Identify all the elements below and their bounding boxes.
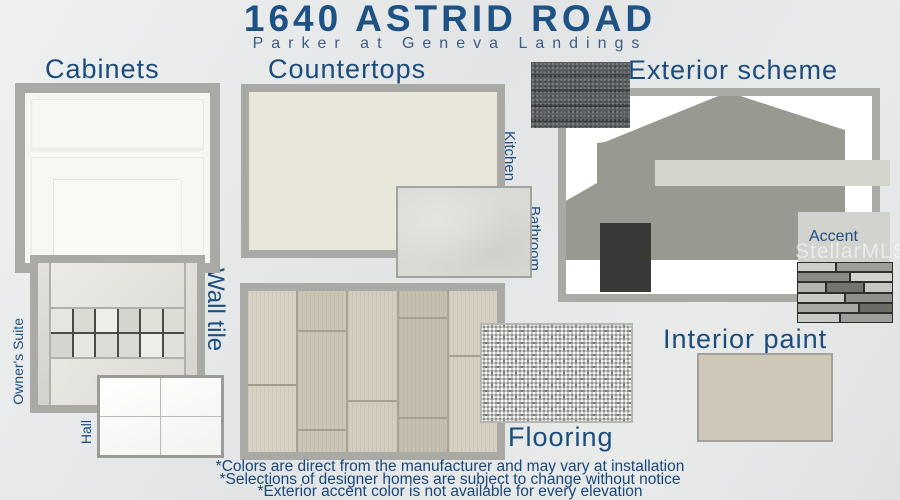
floor-plank xyxy=(298,291,348,452)
page-subtitle: Parker at Geneva Landings xyxy=(0,35,900,53)
hall-tile-swatch xyxy=(97,375,224,458)
floor-plank xyxy=(348,291,398,452)
wall-tile-top xyxy=(51,263,184,307)
interior-paint-label: Interior paint xyxy=(663,324,827,355)
exterior-scheme-label: Exterior scheme xyxy=(628,55,838,86)
floor-plank xyxy=(248,291,298,452)
design-board: 1640 ASTRID ROAD Parker at Geneva Landin… xyxy=(0,0,900,500)
owners-suite-vertical-label: Owner's Suite xyxy=(10,318,26,405)
cabinets-swatch xyxy=(15,83,220,273)
disclaimers: *Colors are direct from the manufacturer… xyxy=(0,461,900,499)
cabinet-door-panel xyxy=(54,180,181,262)
countertops-label: Countertops xyxy=(268,54,426,85)
carpet-swatch xyxy=(480,323,633,423)
wood-flooring-swatch xyxy=(240,283,505,460)
cabinet-door-front xyxy=(31,157,204,263)
bathroom-countertop-swatch xyxy=(396,186,532,278)
front-door-swatch xyxy=(600,223,651,292)
roof-shingles-swatch xyxy=(531,62,630,128)
page-title: 1640 ASTRID ROAD xyxy=(0,0,900,38)
interior-paint-swatch xyxy=(697,353,833,442)
trim-color-swatch xyxy=(655,160,890,186)
wall-tile-side-strip xyxy=(38,263,49,405)
hall-vertical-label: Hall xyxy=(78,420,94,444)
stellar-mls-watermark: StellarMLS xyxy=(795,240,900,264)
cabinets-label: Cabinets xyxy=(45,54,160,85)
wall-tile-mosaic-band xyxy=(51,309,184,357)
accent-stone-swatch xyxy=(797,262,893,323)
flooring-label: Flooring xyxy=(508,422,614,453)
floor-plank xyxy=(399,291,449,452)
disclaimer-line: *Exterior accent color is not available … xyxy=(0,486,900,499)
cabinet-drawer-front xyxy=(31,99,204,151)
header: 1640 ASTRID ROAD Parker at Geneva Landin… xyxy=(0,0,900,53)
wall-tile-vertical-label: Wall tile xyxy=(201,268,229,351)
